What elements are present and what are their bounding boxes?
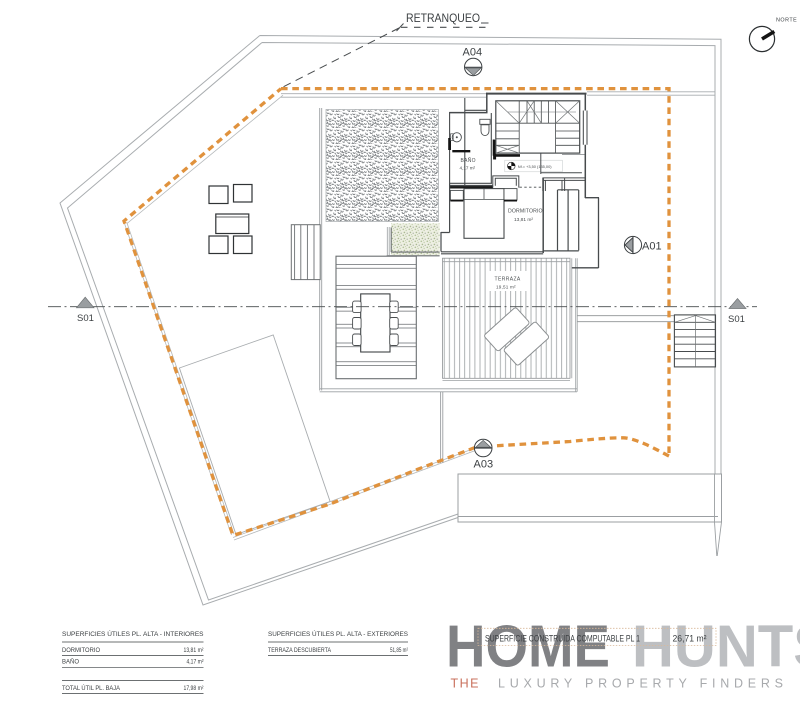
svg-text:4,17 m²: 4,17 m²: [460, 166, 476, 171]
svg-text:A01: A01: [642, 241, 662, 253]
svg-text:S01: S01: [728, 314, 745, 325]
svg-text:A04: A04: [463, 47, 483, 59]
svg-text:BAÑO: BAÑO: [62, 659, 79, 666]
svg-text:17,98 m²: 17,98 m²: [184, 686, 204, 692]
svg-text:Nf.= +3,50 (135,00): Nf.= +3,50 (135,00): [518, 164, 552, 169]
svg-text:26,71 m²: 26,71 m²: [673, 633, 707, 643]
svg-text:SUPERFICIES ÚTILES PL. ALTA -: SUPERFICIES ÚTILES PL. ALTA - EXTERIORES: [268, 629, 409, 638]
svg-text:RETRANQUEO: RETRANQUEO: [406, 11, 480, 25]
svg-text:A03: A03: [474, 459, 494, 471]
svg-text:51,85 m²: 51,85 m²: [390, 648, 408, 654]
svg-text:HUNTS: HUNTS: [632, 614, 800, 680]
svg-text:DORMITORIO: DORMITORIO: [508, 209, 543, 215]
svg-text:4,17 m²: 4,17 m²: [187, 660, 204, 666]
svg-text:SUPERFICIES ÚTILES PL. ALTA -: SUPERFICIES ÚTILES PL. ALTA - INTERIORES: [62, 629, 204, 638]
svg-text:THE: THE: [451, 677, 481, 691]
svg-text:13,81 m²: 13,81 m²: [184, 648, 204, 654]
svg-text:NORTE: NORTE: [776, 18, 797, 24]
svg-text:LUXURY PROPERTY FINDERS: LUXURY PROPERTY FINDERS: [498, 677, 786, 691]
svg-text:HOME: HOME: [446, 614, 610, 680]
svg-text:S01: S01: [77, 313, 94, 324]
svg-text:13,81 m²: 13,81 m²: [514, 217, 533, 223]
svg-text:TERRAZA: TERRAZA: [495, 277, 521, 283]
svg-text:BAÑO: BAÑO: [461, 157, 476, 164]
svg-text:TOTAL ÚTIL PL. BAJA: TOTAL ÚTIL PL. BAJA: [62, 685, 120, 692]
svg-text:SUPERFICIE CONSTRUIDA COMPUTAB: SUPERFICIE CONSTRUIDA COMPUTABLE PL 1: [485, 633, 640, 643]
svg-text:DORMITORIO: DORMITORIO: [62, 648, 100, 654]
svg-text:TERRAZA DESCUBIERTA: TERRAZA DESCUBIERTA: [268, 648, 331, 654]
svg-text:19,51 m²: 19,51 m²: [496, 285, 516, 290]
